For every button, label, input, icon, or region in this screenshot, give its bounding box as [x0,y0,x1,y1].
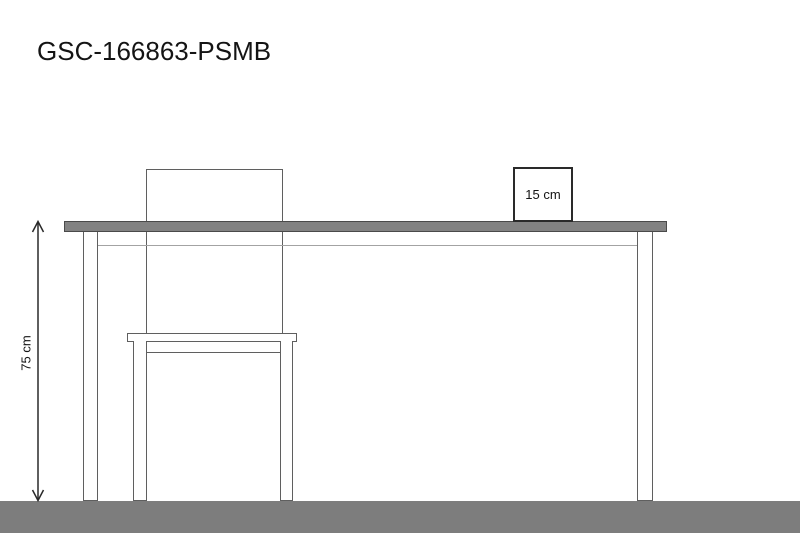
desk-tabletop [64,221,667,232]
box-on-desk: 15 cm [513,167,573,222]
arrowhead-up-icon [33,222,44,233]
drawing-title: GSC-166863-PSMB [37,36,271,67]
box-label: 15 cm [525,187,560,202]
height-dimension-arrow [0,0,800,533]
desk-apron-line [98,245,637,246]
chair-left-leg [133,341,147,501]
desk-right-leg [637,232,653,501]
chair-right-leg [280,341,293,501]
floor [0,501,800,533]
arrowhead-down-icon [33,490,44,501]
chair-backrest [146,169,283,333]
height-dimension-label: 75 cm [19,335,34,370]
chair-seat [127,333,297,342]
chair-apron-line [147,352,280,353]
desk-left-leg [83,232,98,501]
technical-drawing: GSC-166863-PSMB 15 cm 75 cm [0,0,800,533]
